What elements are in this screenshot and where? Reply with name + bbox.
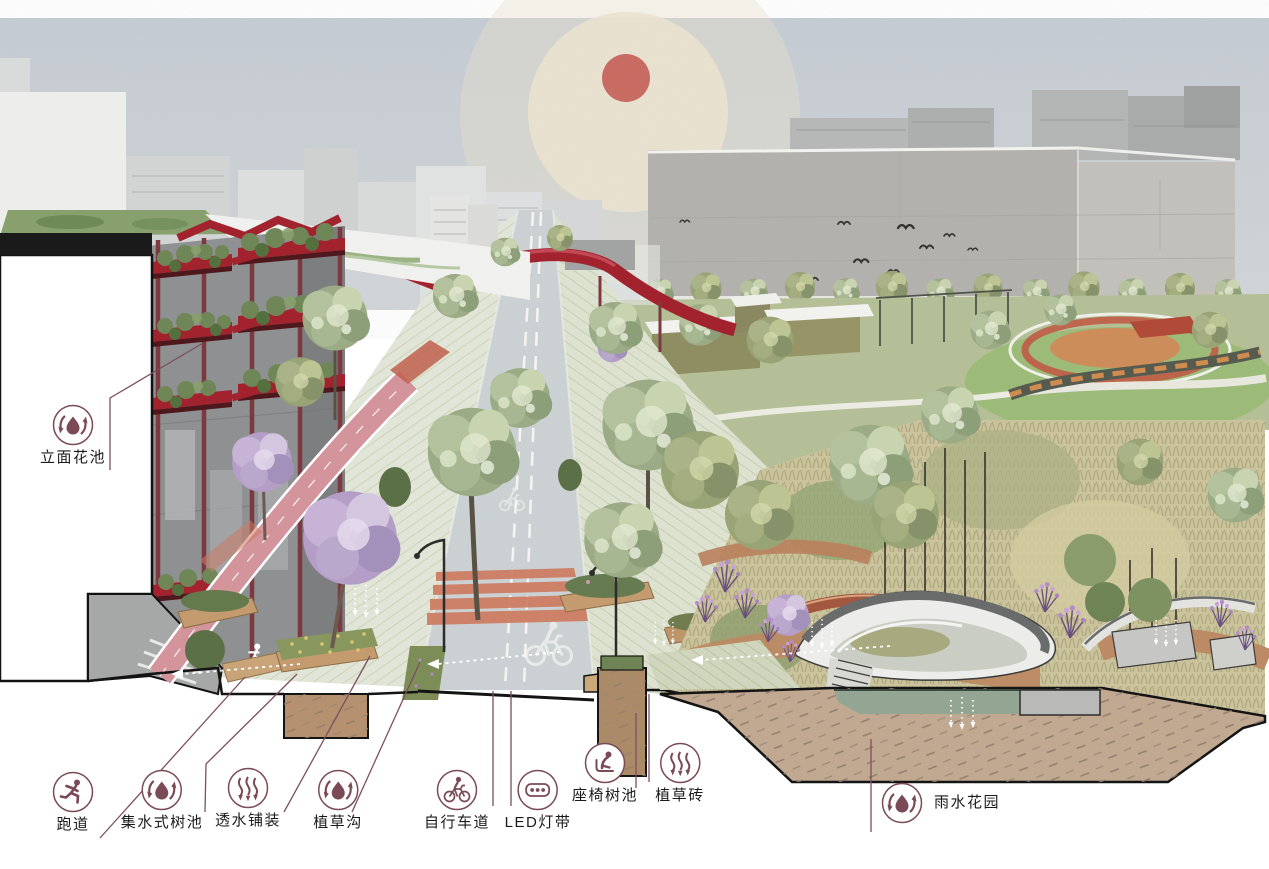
streetscape-section-rendering: 立面花池 跑道 集水式树池 透水铺装 植草沟 (0, 0, 1269, 869)
callout-permeable-paving: 透水铺装 (215, 766, 281, 830)
seated-person-icon (583, 741, 627, 785)
water-cycle-icon (51, 403, 95, 447)
infiltration-arrows-icon (658, 741, 702, 785)
callout-grass-paving-brick: 植草砖 (655, 741, 705, 805)
callout-facade-planter: 立面花池 (40, 403, 106, 467)
callout-rain-garden: 雨水花园 (880, 781, 1000, 825)
callout-label: 植草沟 (313, 815, 363, 832)
callout-seat-tree-pit: 座椅树池 (572, 741, 638, 805)
rendering-canvas (0, 0, 1269, 869)
tree-pit-soil (284, 694, 368, 738)
water-cycle-icon (316, 768, 360, 812)
callout-label: 透水铺装 (215, 813, 281, 830)
callout-grass-swale: 植草沟 (313, 768, 363, 832)
callout-water-collecting-tree-pit: 集水式树池 (121, 768, 204, 832)
water-cycle-icon (140, 768, 184, 812)
callout-label: 集水式树池 (121, 815, 204, 832)
callout-led-light-strip: LED灯带 (505, 768, 572, 832)
water-cycle-icon (880, 781, 924, 825)
callout-label: 植草砖 (655, 788, 705, 805)
infiltration-arrows-icon (226, 766, 270, 810)
led-strip-icon (516, 768, 560, 812)
callout-running-track: 跑道 (51, 770, 95, 834)
callout-label: LED灯带 (505, 815, 572, 832)
callout-label: 跑道 (56, 817, 89, 834)
callout-bike-lane: 自行车道 (424, 768, 490, 832)
cyclist-icon (435, 768, 479, 812)
callout-label: 立面花池 (40, 450, 106, 467)
callout-label: 自行车道 (424, 815, 490, 832)
runner-icon (51, 770, 95, 814)
callout-label: 雨水花园 (934, 795, 1000, 812)
callout-label: 座椅树池 (572, 788, 638, 805)
